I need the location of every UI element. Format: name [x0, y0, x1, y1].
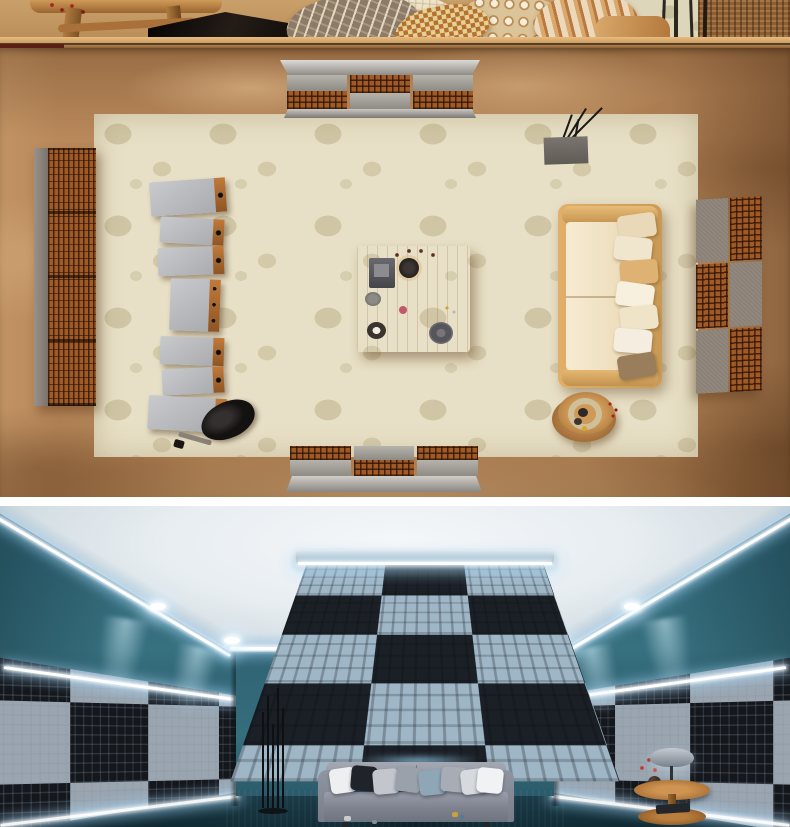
- round-wooden-stool: [552, 388, 620, 446]
- multi-rod-floor-lamp: [256, 686, 296, 814]
- throw-pillow: [613, 327, 653, 354]
- right-wall-checker-panel: [696, 196, 762, 393]
- diffuser-metal-lip: [284, 109, 476, 118]
- checker-cell: [730, 196, 762, 261]
- lamp-base-mat: [544, 136, 589, 165]
- acoustic-guitar: [178, 400, 268, 460]
- bottom-wall-diffuser-panel: [286, 446, 482, 492]
- tabletop-radio: [369, 258, 395, 288]
- wood-grid-half: [417, 446, 478, 460]
- floor-clutter: [460, 815, 464, 819]
- fabric-half: [354, 446, 415, 460]
- round-side-table: [634, 742, 710, 827]
- floor-clutter: [344, 816, 351, 821]
- wood-grid-half: [354, 460, 415, 476]
- recessed-downlight: [224, 637, 240, 644]
- living-room-top-view: [0, 48, 790, 497]
- twig-floor-lamp: [544, 137, 614, 197]
- floor-clutter: [372, 820, 377, 824]
- lamp-rod: [262, 712, 264, 808]
- render-collage: [0, 0, 790, 827]
- checker-cell: [696, 198, 728, 263]
- lamp-rod: [282, 708, 284, 808]
- loudspeaker-top-view: [169, 278, 221, 332]
- recessed-downlight: [624, 603, 640, 610]
- loudspeaker-top-view: [160, 336, 225, 366]
- decor-chip: [582, 426, 587, 431]
- wood-grid-half: [413, 91, 473, 109]
- recessed-downlight: [150, 603, 166, 610]
- decor-stone: [574, 418, 582, 425]
- tea-cups: [391, 247, 439, 260]
- loudspeaker-top-view: [158, 246, 225, 276]
- wood-grid-half: [287, 91, 347, 109]
- checker-cell: [696, 263, 728, 328]
- teapot: [399, 258, 419, 278]
- checker-cell: [696, 329, 728, 394]
- cloud-metal-frame: [296, 550, 554, 563]
- sofa-pillow-row: [330, 765, 502, 795]
- left-wall-lattice-diffuser: [34, 148, 96, 406]
- diffuser-sections: [290, 446, 478, 476]
- speaker-column: [148, 180, 240, 412]
- top-wall-diffuser-panel: [280, 60, 480, 118]
- diffuser-section: [354, 446, 415, 476]
- lamp-rod: [267, 696, 269, 808]
- sofa-leg: [342, 822, 348, 827]
- lattice-side-frame: [34, 148, 48, 406]
- checker-cell: [730, 327, 762, 392]
- throw-pillow: [616, 351, 657, 381]
- coffee-table: [357, 246, 470, 352]
- berry-decoration: [46, 1, 92, 18]
- wood-grid-half: [350, 75, 410, 93]
- fabric-half: [350, 93, 410, 109]
- wood-grid-half: [290, 446, 351, 460]
- sofa-closeup-strip: [0, 0, 790, 48]
- flower-decoration: [399, 306, 407, 314]
- sofa-leg: [484, 822, 490, 827]
- diffuser-metal-frame: [280, 60, 480, 75]
- sofa-frame-rail: [0, 37, 790, 48]
- table-lamp-shade: [650, 748, 694, 767]
- sofa-back-pillows: [614, 214, 660, 378]
- diffuser-section: [417, 446, 478, 476]
- floor-clutter: [452, 812, 458, 817]
- decorative-plate: [429, 322, 453, 344]
- fabric-half: [287, 75, 347, 91]
- diffuser-section: [350, 75, 410, 109]
- lamp-base: [258, 808, 288, 814]
- loudspeaker-top-view: [161, 366, 224, 395]
- checker-cell: [730, 262, 762, 327]
- diffuser-sections: [287, 75, 473, 109]
- ceiling-acoustic-cloud: [296, 550, 554, 720]
- diffuser-metal-base: [286, 476, 482, 492]
- throw-pillow: [476, 767, 504, 795]
- decor-stone: [578, 408, 588, 417]
- diffuser-section: [287, 75, 347, 109]
- lamp-rod: [277, 688, 279, 808]
- frame-shadow-line: [0, 43, 790, 45]
- loudspeaker-top-view: [159, 216, 224, 245]
- berry-sprig: [594, 396, 620, 418]
- home-theater-render: [0, 506, 790, 827]
- lamp-rod: [272, 724, 274, 808]
- coffee-cup: [367, 322, 386, 339]
- diffuser-section: [290, 446, 351, 476]
- fabric-half: [290, 460, 351, 476]
- fabric-half: [413, 75, 473, 91]
- bowl: [365, 292, 381, 306]
- loudspeaker-top-view: [149, 177, 227, 216]
- fabric-half: [417, 460, 478, 476]
- sofa-seat: [324, 792, 508, 822]
- diffuser-section: [413, 75, 473, 109]
- lattice-grid: [48, 148, 96, 406]
